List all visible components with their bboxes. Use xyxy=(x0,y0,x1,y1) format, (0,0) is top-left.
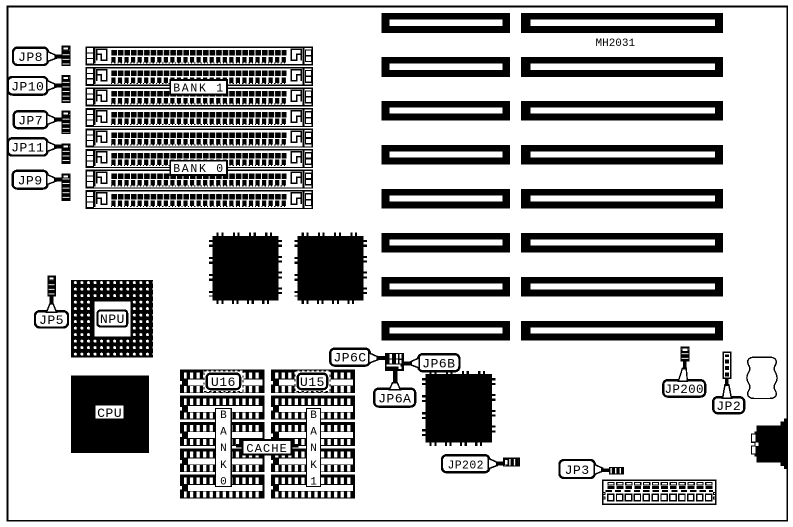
svg-text:A: A xyxy=(310,427,317,439)
svg-text:BANK 1: BANK 1 xyxy=(173,82,225,95)
svg-text:U16: U16 xyxy=(211,375,236,390)
svg-text:CPU: CPU xyxy=(97,406,122,421)
svg-text:JP8: JP8 xyxy=(18,50,43,65)
svg-text:JP6B: JP6B xyxy=(422,356,455,371)
svg-text:A: A xyxy=(220,427,227,439)
svg-text:N: N xyxy=(310,443,317,455)
svg-text:0: 0 xyxy=(220,476,227,488)
svg-text:JP202: JP202 xyxy=(447,459,484,472)
svg-text:BANK 0: BANK 0 xyxy=(173,163,225,176)
svg-text:JP7: JP7 xyxy=(18,113,43,128)
svg-text:N: N xyxy=(220,443,227,455)
svg-text:1: 1 xyxy=(310,476,317,488)
svg-text:JP9: JP9 xyxy=(18,173,43,188)
svg-text:NPU: NPU xyxy=(100,312,125,327)
svg-text:MH2031: MH2031 xyxy=(596,38,636,50)
svg-text:JP3: JP3 xyxy=(565,463,590,478)
svg-text:JP200: JP200 xyxy=(665,383,704,397)
svg-text:K: K xyxy=(310,460,317,472)
svg-text:JP6A: JP6A xyxy=(378,392,411,407)
svg-text:K: K xyxy=(220,460,227,472)
svg-text:CACHE: CACHE xyxy=(246,442,288,456)
svg-text:U15: U15 xyxy=(300,375,325,390)
svg-text:B: B xyxy=(220,410,227,422)
svg-text:JP10: JP10 xyxy=(11,79,44,94)
svg-text:JP2: JP2 xyxy=(716,399,741,414)
svg-text:B: B xyxy=(310,410,317,422)
svg-text:JP5: JP5 xyxy=(39,313,64,328)
svg-text:JP11: JP11 xyxy=(11,141,44,156)
svg-text:JP6C: JP6C xyxy=(333,351,366,366)
